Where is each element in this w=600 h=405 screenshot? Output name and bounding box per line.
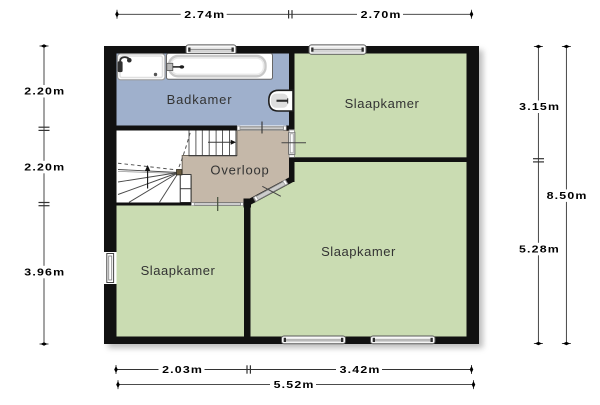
svg-text:2.03m: 2.03m — [162, 364, 203, 376]
svg-text:2.20m: 2.20m — [24, 161, 65, 173]
svg-text:5.52m: 5.52m — [274, 379, 315, 391]
svg-text:Badkamer: Badkamer — [167, 92, 233, 107]
svg-text:3.15m: 3.15m — [519, 101, 560, 113]
svg-text:2.20m: 2.20m — [24, 86, 65, 98]
svg-text:8.50m: 8.50m — [547, 190, 588, 202]
svg-text:2.70m: 2.70m — [361, 9, 402, 21]
svg-text:3.96m: 3.96m — [24, 266, 65, 278]
svg-text:Slaapkamer: Slaapkamer — [345, 96, 420, 111]
svg-text:2.74m: 2.74m — [184, 9, 225, 21]
svg-text:Slaapkamer: Slaapkamer — [321, 244, 396, 259]
svg-text:Slaapkamer: Slaapkamer — [141, 263, 216, 278]
svg-text:3.42m: 3.42m — [340, 364, 381, 376]
svg-text:Overloop: Overloop — [210, 162, 269, 177]
svg-text:5.28m: 5.28m — [519, 243, 560, 255]
